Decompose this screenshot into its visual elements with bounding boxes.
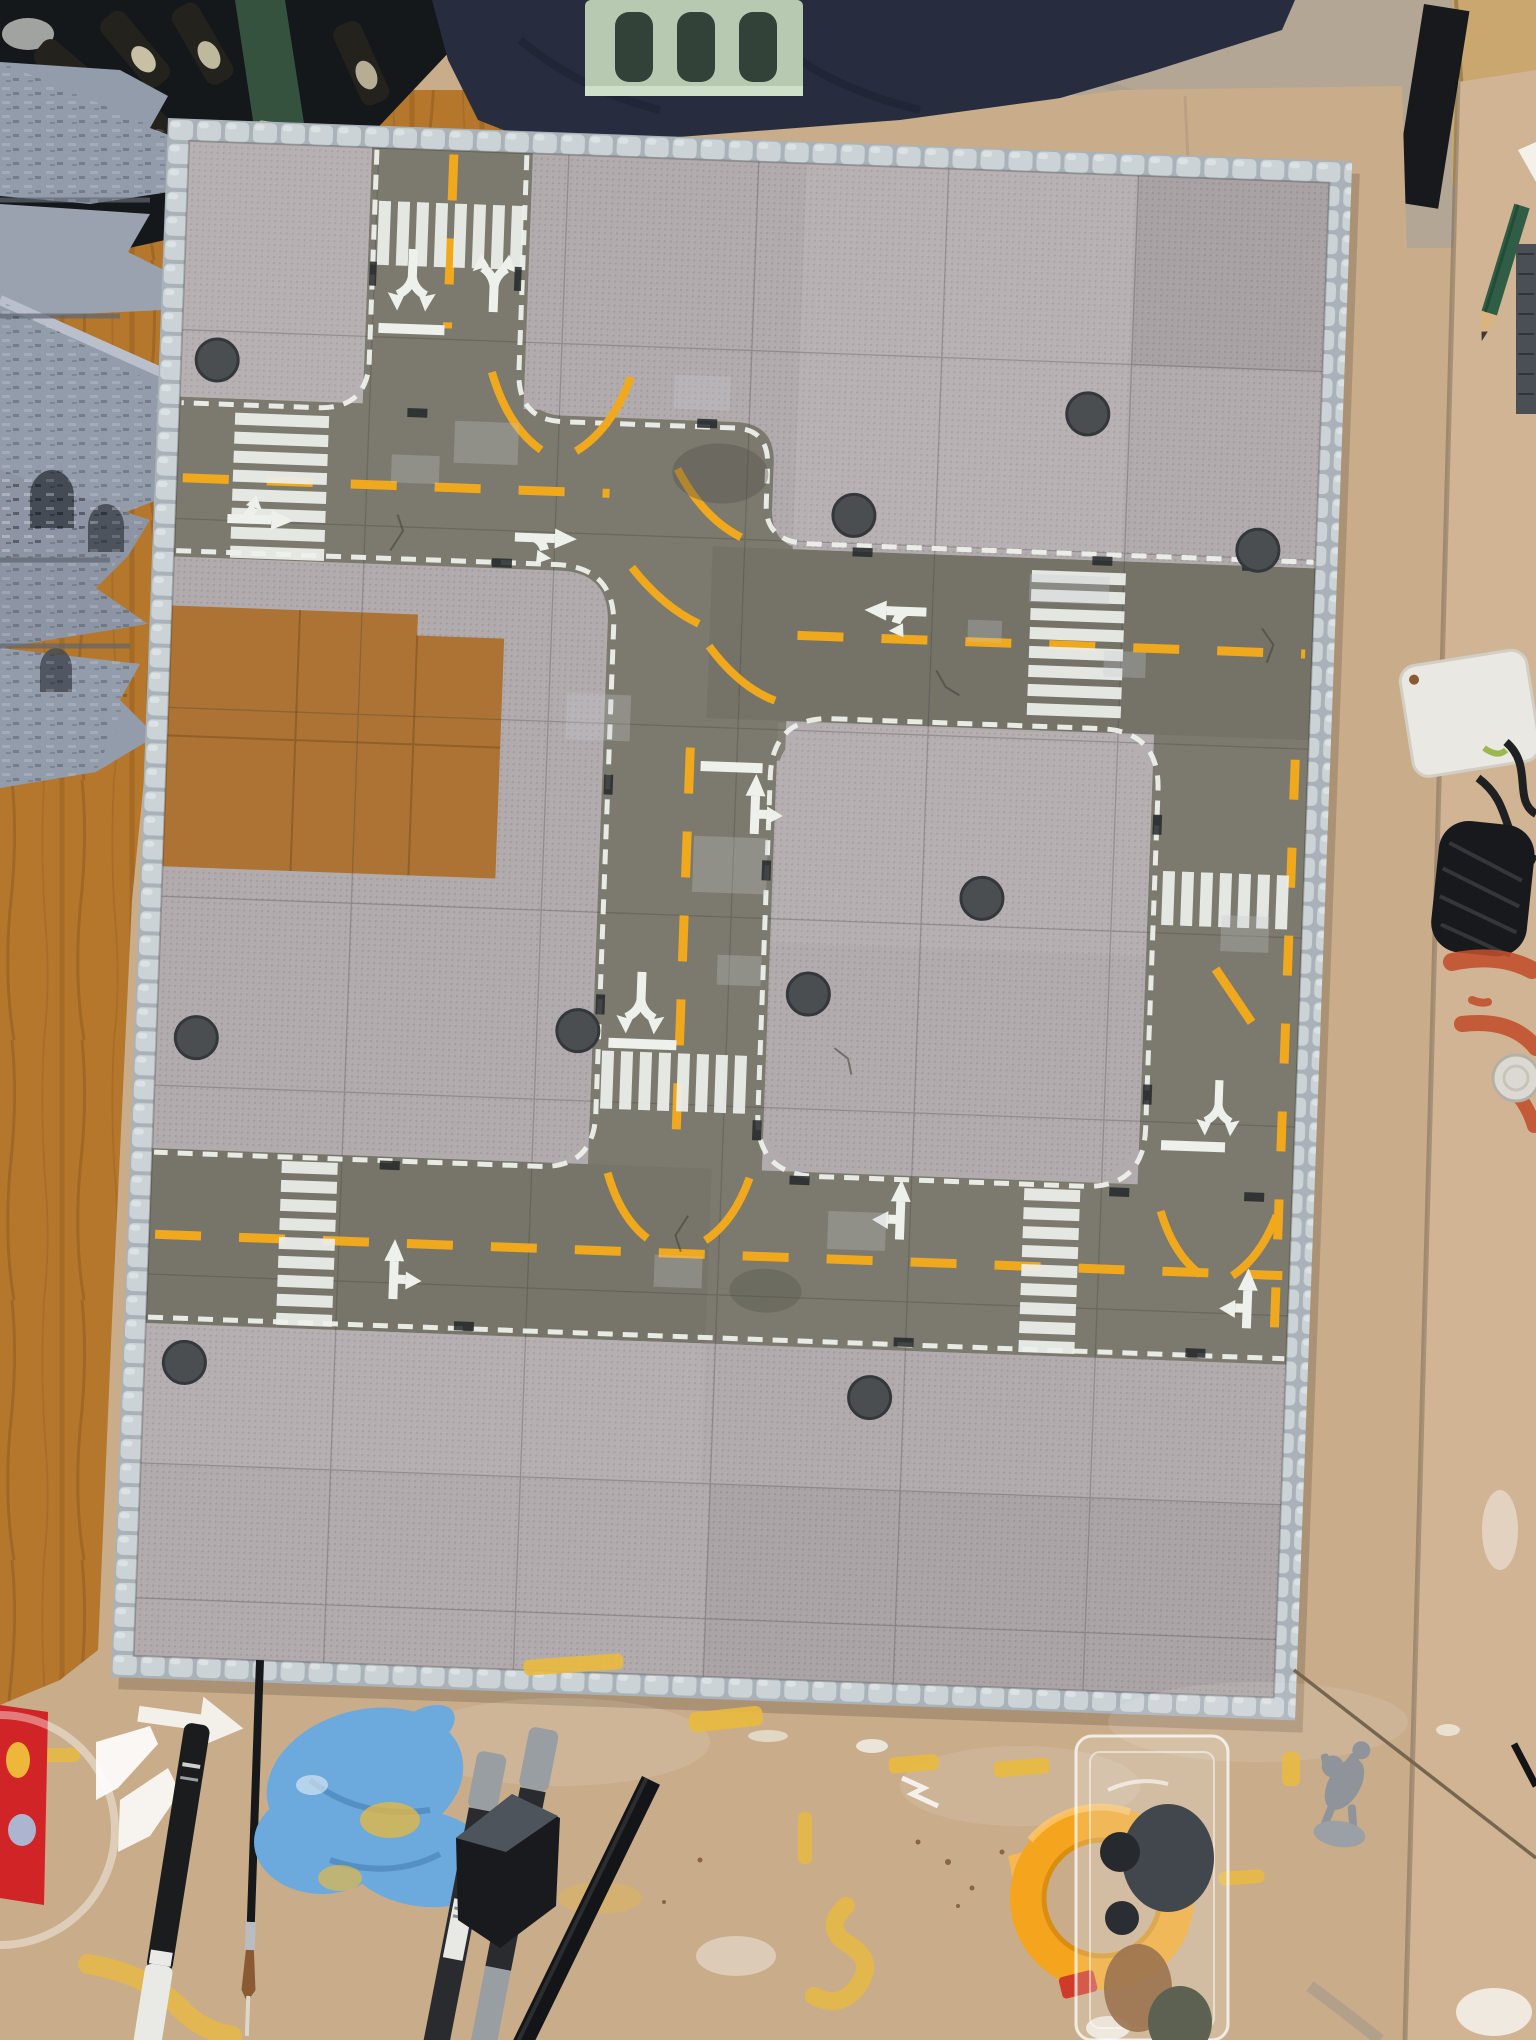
- red-tub-corner: [0, 1705, 48, 1905]
- manhole-cover: [832, 494, 876, 538]
- mdf-bare-patch: [163, 605, 505, 878]
- manhole-cover: [163, 1341, 207, 1385]
- manhole-cover: [1066, 392, 1110, 436]
- crosswalk-bottom-right: [1018, 1188, 1080, 1354]
- manhole-cover: [175, 1016, 219, 1060]
- workbench-photo: [0, 0, 1536, 2040]
- manhole-cover: [556, 1009, 600, 1053]
- blister-palette: [1076, 1736, 1228, 2040]
- black-ribbed-object: [1428, 818, 1536, 959]
- green-plastic-crate: [585, 0, 803, 96]
- manhole-cover: [848, 1376, 892, 1420]
- manhole-cover: [1236, 528, 1280, 572]
- manhole-cover: [787, 972, 831, 1016]
- bottle-cap: [1493, 1055, 1536, 1101]
- manhole-cover: [195, 338, 239, 382]
- black-paint-blob: [1105, 1901, 1139, 1935]
- manhole-cover: [960, 877, 1004, 921]
- crosswalk-bottom-left: [276, 1161, 338, 1327]
- street-tile-board: [110, 118, 1360, 1733]
- black-paint-blob: [1100, 1832, 1140, 1872]
- dark-baseplate-edge: [1516, 244, 1536, 414]
- scene-canvas: [0, 0, 1536, 2040]
- white-smudge: [1482, 1490, 1518, 1570]
